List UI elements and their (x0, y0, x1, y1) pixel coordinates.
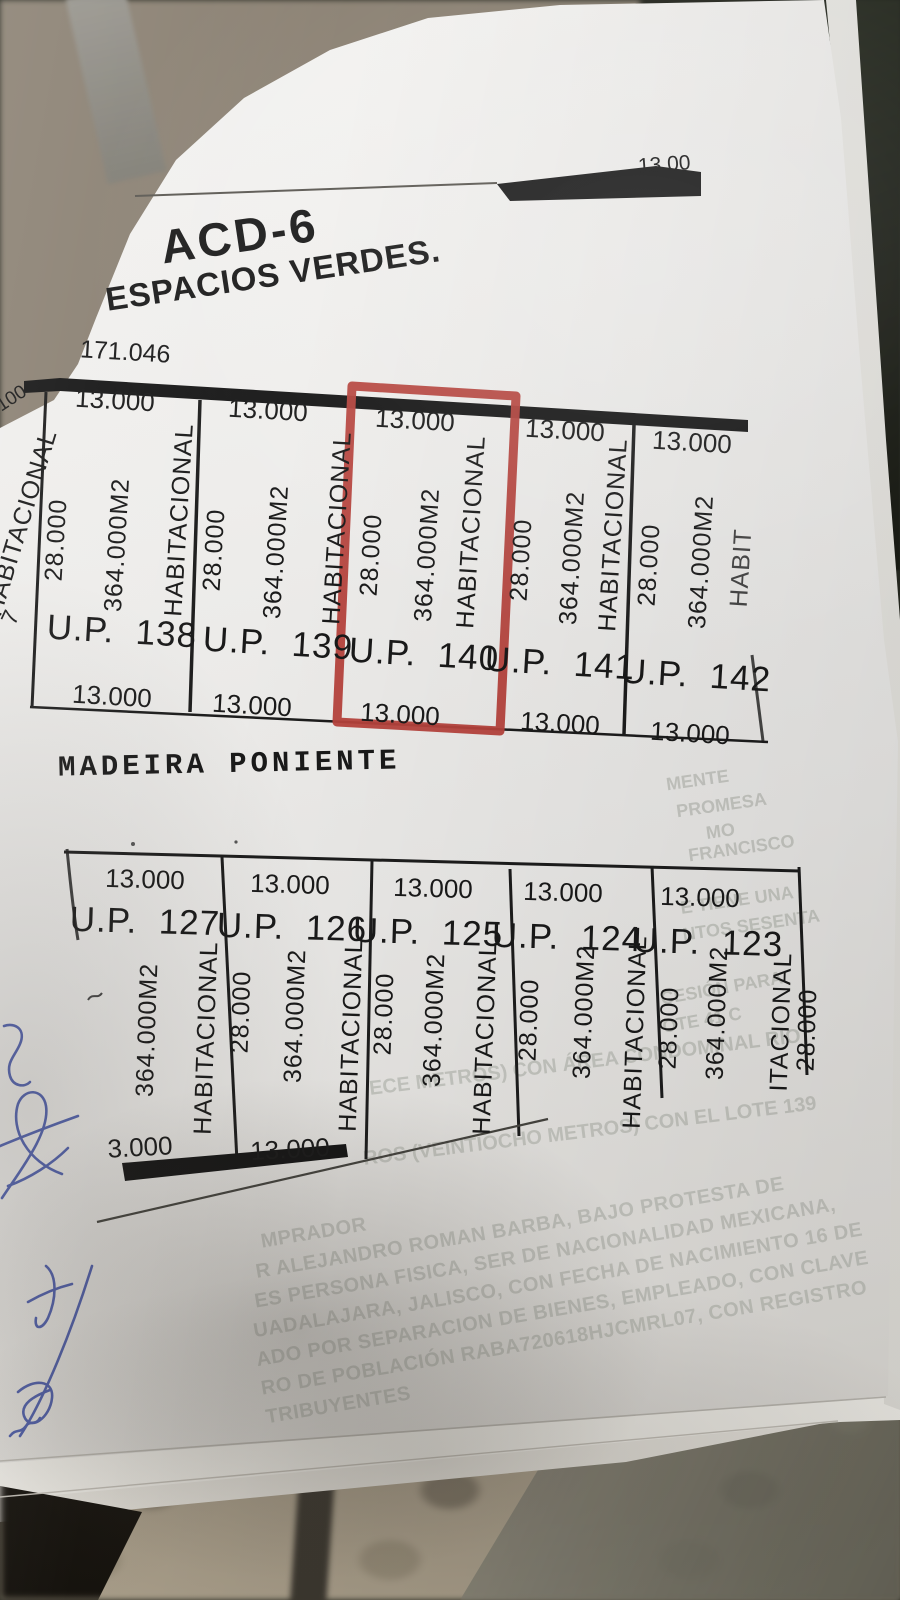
signature-lower-stroke (28, 1284, 72, 1302)
signature-layer (0, 0, 900, 1600)
signature-upper-stroke (2, 1092, 62, 1198)
signature-lower-stroke (20, 1266, 92, 1436)
signature-upper-stroke (4, 1025, 30, 1085)
signature-upper-stroke (8, 1148, 68, 1186)
signature-strokes (0, 1025, 92, 1436)
photographed-plat-document: MENTE PROMESA MO FRANCISCO E TIENE UNA N… (0, 0, 900, 1600)
signature-lower-stroke (10, 1418, 40, 1436)
signature-lower-stroke (18, 1383, 52, 1423)
